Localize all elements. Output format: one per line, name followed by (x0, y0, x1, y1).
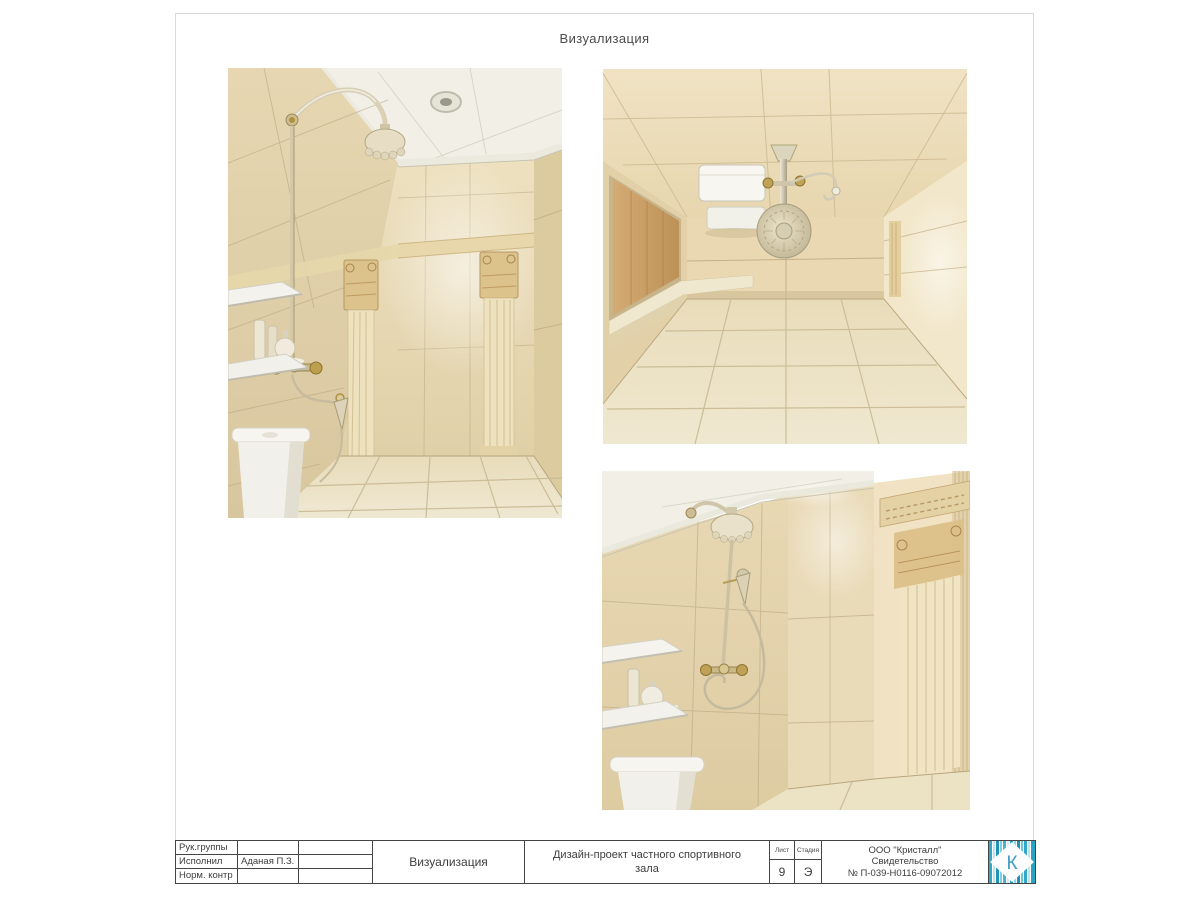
bottle (254, 320, 265, 360)
company-certificate-number: № П-039-Н0116-09072012 (848, 868, 963, 880)
stage-label: Стадия (795, 841, 822, 860)
name-cell-norm-control (238, 869, 299, 883)
page-title: Визуализация (175, 31, 1034, 46)
company-info: ООО "Кристалл" Свидетельство № П-039-Н01… (822, 841, 989, 883)
company-name: ООО "Кристалл" (848, 845, 963, 857)
role-label-group-lead: Рук.группы (176, 841, 238, 855)
bottle (268, 326, 277, 360)
sheet-number: 9 (770, 860, 795, 883)
company-certificate: Свидетельство (848, 856, 963, 868)
render-room-top-svg (603, 69, 967, 444)
cistern-top-view (699, 165, 765, 238)
role-label-norm-control: Норм. контр (176, 869, 238, 883)
logo-letter: К (1006, 853, 1017, 874)
right-wall (534, 146, 562, 498)
render-shower-front-svg (228, 68, 562, 518)
column-shaft (900, 575, 960, 777)
company-logo: К (989, 841, 1035, 883)
kristall-logo-icon: К (989, 841, 1035, 883)
project-title: Дизайн-проект частного спортивного зала (525, 841, 770, 883)
role-label-executor: Исполнил (176, 855, 238, 869)
title-block: Рук.группы Исполнил Норм. контр Аданая П… (175, 840, 1036, 884)
signature-cell (299, 869, 373, 883)
signature-cell (299, 855, 373, 869)
render-shower-front-view (228, 68, 562, 518)
signature-cell (299, 841, 373, 855)
render-shower-corner-svg (602, 471, 970, 810)
name-cell-executor: Аданая П.З. (238, 855, 299, 869)
document-type: Визуализация (373, 841, 525, 883)
render-shower-corner-view (602, 471, 970, 810)
right-wall (874, 471, 970, 810)
page: { "sheet": { "top_title": "Визуализация"… (0, 0, 1200, 900)
back-wall (788, 483, 880, 810)
sheet-label: Лист (770, 841, 795, 860)
stage-value: Э (795, 860, 822, 883)
toilet-tank (232, 428, 310, 518)
toilet-tank (610, 757, 704, 810)
render-room-top-view (603, 69, 967, 444)
name-cell-group-lead (238, 841, 299, 855)
bottle (628, 669, 639, 707)
